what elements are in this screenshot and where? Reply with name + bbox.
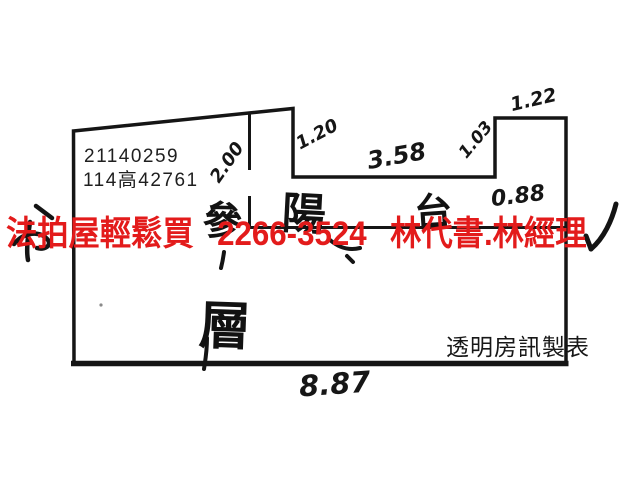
- paper-speck: [99, 303, 102, 306]
- reference-number: 114高42761: [83, 169, 199, 192]
- measurement-bottom-width: 8.87: [298, 365, 372, 404]
- watermark-brand: 法拍屋輕鬆買: [6, 215, 194, 253]
- credit-text: 透明房訊製表: [446, 328, 590, 362]
- floor-label-char2: 層: [198, 283, 253, 360]
- case-number: 21140259: [84, 145, 179, 168]
- watermark-banner: 法拍屋輕鬆買 2266-3524 林代書.林經理: [6, 215, 586, 253]
- watermark-contact: 林代書.林經理: [390, 215, 586, 253]
- watermark-phone: 2266-3524: [217, 215, 367, 253]
- scanned-floorplan-page: 21140259 114高42761 陽 台 參 層 2.00 1.20 3.5…: [0, 0, 640, 480]
- handwriting-mark-right: [586, 204, 616, 249]
